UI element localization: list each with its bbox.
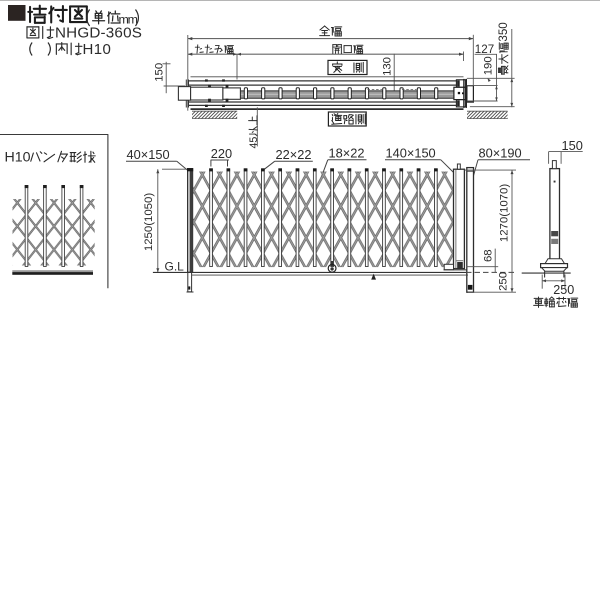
svg-text:250: 250 [553,283,574,297]
svg-text:45: 45 [248,137,260,149]
svg-text:68: 68 [483,249,495,262]
svg-text:22×22: 22×22 [276,147,312,162]
svg-text:150: 150 [562,138,583,153]
svg-text:150: 150 [154,63,166,82]
svg-text:1270(1070): 1270(1070) [498,184,510,242]
svg-text:80×190: 80×190 [479,146,522,161]
svg-text:G.L: G.L [165,259,185,273]
svg-text:140×150: 140×150 [386,146,436,161]
svg-text:220: 220 [211,146,232,161]
svg-text:350: 350 [497,22,510,41]
svg-text:250: 250 [498,272,510,291]
svg-text:NHGD-360S: NHGD-360S [55,25,142,42]
svg-text:1250(1050): 1250(1050) [143,193,155,251]
svg-text:H10: H10 [5,149,31,165]
svg-text:130: 130 [382,57,394,76]
svg-text:190: 190 [482,56,494,75]
svg-text:H10: H10 [83,41,112,58]
svg-text:40×150: 40×150 [127,147,170,162]
svg-text:18×22: 18×22 [329,146,365,161]
